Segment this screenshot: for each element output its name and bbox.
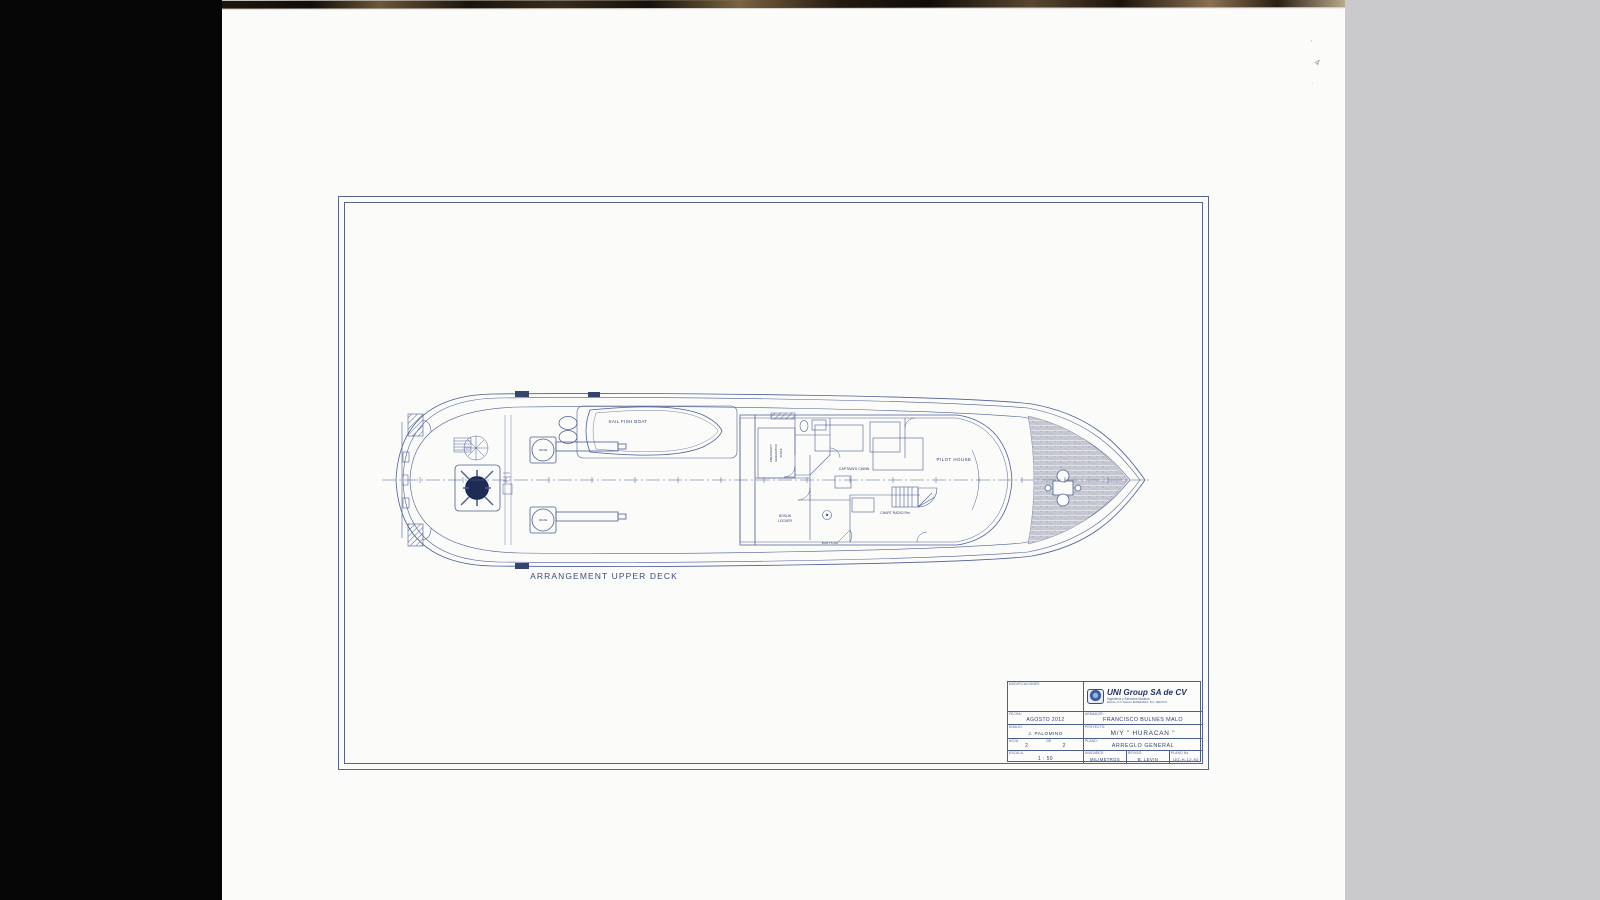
company-cell: UNI Group SA de CV Ingeniería y Servicio…	[1083, 682, 1202, 711]
label-crane-starboard: CRANE	[539, 449, 548, 452]
de-value: 2	[1046, 743, 1084, 749]
upper-deck-plan: SAIL FISH BOAT PILOT HOUSE CAPTAIN'S CAB…	[372, 380, 1172, 590]
proyecto-label: PROYECTO:	[1085, 725, 1106, 729]
label-chart-radio-rm: CHART RADIO Rm	[880, 511, 910, 515]
reviso-cell: REVISO: B. LEVIN	[1126, 750, 1169, 763]
escala-value: 1 : 50	[1008, 756, 1083, 762]
scan-black-margin-left	[0, 0, 222, 900]
pencil-mark: ’	[1309, 40, 1312, 47]
plano-no-cell: PLANO No. UG-H-12-92	[1169, 750, 1202, 763]
hoja-value: 2	[1008, 743, 1046, 749]
label-captains-cabin: CAPTAIN'S CABIN	[839, 467, 870, 471]
pencil-mark: 4	[1313, 57, 1321, 67]
dibujo-cell: DIBUJO: J. PALOMINO	[1008, 724, 1083, 738]
drawing-caption: ARRANGEMENT UPPER DECK	[514, 571, 694, 581]
label-pilot-house: PILOT HOUSE	[937, 457, 972, 462]
reviso-value: B. LEVIN	[1127, 757, 1169, 762]
plano-value: ARREGLO GENERAL	[1084, 743, 1202, 749]
scan-gray-margin-right	[1345, 0, 1600, 900]
dibujo-value: J. PALOMINO	[1008, 732, 1083, 737]
reviso-label: REVISO:	[1128, 751, 1142, 755]
label-crane-port: CRANE	[539, 519, 548, 522]
tender-boat	[586, 407, 722, 455]
dibujo-label: DIBUJO:	[1009, 725, 1023, 729]
proyecto-value: M/Y " HURACAN "	[1084, 730, 1202, 737]
label-emergency-1: EMERGENCY	[769, 444, 773, 462]
escala-cell: ESCALA: 1 : 50	[1008, 750, 1083, 763]
title-block-revisions-cell: MODIFICACIONES	[1008, 682, 1083, 711]
revisions-label: MODIFICACIONES	[1009, 682, 1040, 686]
label-bosun-locker-1: BOSUN	[779, 514, 792, 518]
label-bosun-locker-2: LOCKER	[778, 519, 792, 523]
aft-deck-table	[455, 465, 512, 511]
proyecto-cell: PROYECTO: M/Y " HURACAN "	[1083, 724, 1202, 738]
armador-label: ARMADOR:	[1085, 712, 1104, 716]
company-address: México, D.F. México ENSENADA, B.C. MEXIC…	[1107, 701, 1187, 704]
unidades-label: UNIDADES:	[1085, 751, 1104, 755]
plano-no-value: UG-H-12-92	[1170, 757, 1202, 762]
scan-page-edge-strip	[222, 0, 1345, 10]
fecha-cell: FECHA: AGOSTO 2012	[1008, 711, 1083, 724]
label-emergency-2: GENERATOR	[774, 444, 778, 461]
fecha-label: FECHA:	[1009, 712, 1022, 716]
label-sail-fish-boat: SAIL FISH BOAT	[608, 419, 647, 424]
title-block: MODIFICACIONES UNI Group SA de CV Ingeni…	[1007, 681, 1201, 762]
unidades-cell: UNIDADES: MILIMETROS	[1083, 750, 1126, 763]
fecha-value: AGOSTO 2012	[1008, 717, 1083, 723]
escala-label: ESCALA:	[1009, 751, 1024, 755]
plano-no-label: PLANO No.	[1171, 751, 1189, 755]
hoja-cell: HOJA 2 DE 2	[1008, 738, 1083, 750]
armador-value: FRANCISCO BULNES MALO	[1084, 717, 1202, 723]
plano-cell: PLANO: ARREGLO GENERAL	[1083, 738, 1202, 750]
company-logo-icon	[1087, 689, 1104, 704]
pencil-mark: ·	[1311, 80, 1313, 87]
unidades-value: MILIMETROS	[1084, 757, 1126, 762]
label-emergency-3: SPACE	[779, 448, 783, 457]
label-buoys-rm: BUOY'S Rm	[822, 541, 839, 545]
drawing-sheet: ’ 4 ·	[222, 0, 1345, 900]
armador-cell: ARMADOR: FRANCISCO BULNES MALO	[1083, 711, 1202, 724]
spiral-staircase	[454, 436, 488, 460]
